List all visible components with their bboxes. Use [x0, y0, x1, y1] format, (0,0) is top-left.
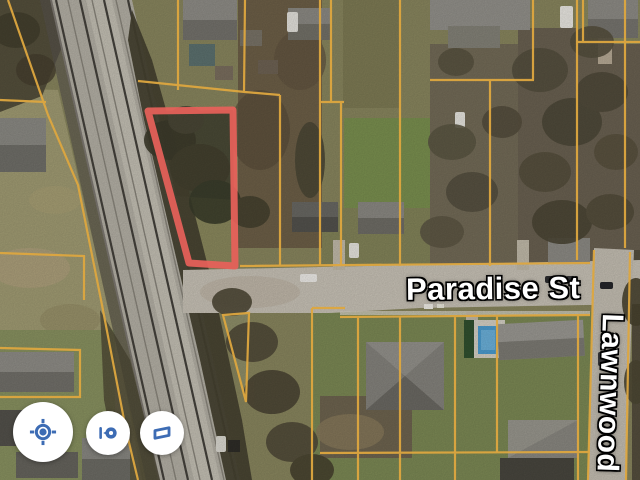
satellite-imagery [0, 0, 640, 480]
satellite-map[interactable]: Paradise St Lawnwood [0, 0, 640, 480]
map-tilt-icon [149, 420, 175, 446]
my-location-button[interactable] [13, 402, 73, 462]
my-location-icon [27, 416, 59, 448]
street-view-button[interactable] [86, 411, 130, 455]
street-view-pin-icon [95, 420, 121, 446]
map-view-button[interactable] [140, 411, 184, 455]
